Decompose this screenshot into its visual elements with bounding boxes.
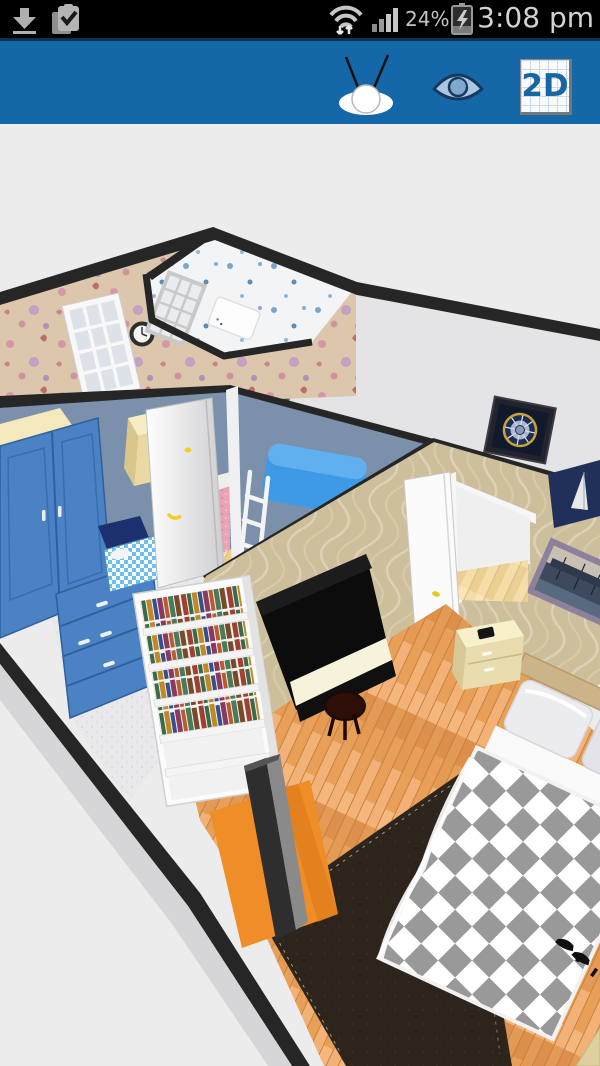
wifi-arrows-icon <box>331 8 361 34</box>
nightstand <box>452 620 524 690</box>
piano-stool <box>325 692 365 740</box>
signal-bars-icon <box>372 8 398 32</box>
eye-icon <box>430 67 486 109</box>
clock-time: 3:08 pm <box>477 1 594 34</box>
toolbar: 2D <box>0 38 600 124</box>
battery-percent: 24% <box>405 7 449 31</box>
battery-charging-icon <box>452 3 472 34</box>
floorplan-3d-view[interactable] <box>0 124 600 1066</box>
visibility-button[interactable] <box>430 67 486 109</box>
ceiling-medallion-picture <box>484 397 556 464</box>
clipboard-check-icon <box>52 4 79 34</box>
status-bar[interactable]: 24% 3:08 pm <box>0 0 600 38</box>
walk-view-button[interactable] <box>336 53 396 117</box>
2d-toggle-button[interactable]: 2D <box>520 59 572 115</box>
download-icon <box>13 8 36 34</box>
open-door-blue-room <box>146 398 224 588</box>
person-top-view-icon <box>336 53 396 117</box>
app-root: 24% 3:08 pm 2D 2 F: 0 D: false pc = 1 <box>0 0 600 1066</box>
